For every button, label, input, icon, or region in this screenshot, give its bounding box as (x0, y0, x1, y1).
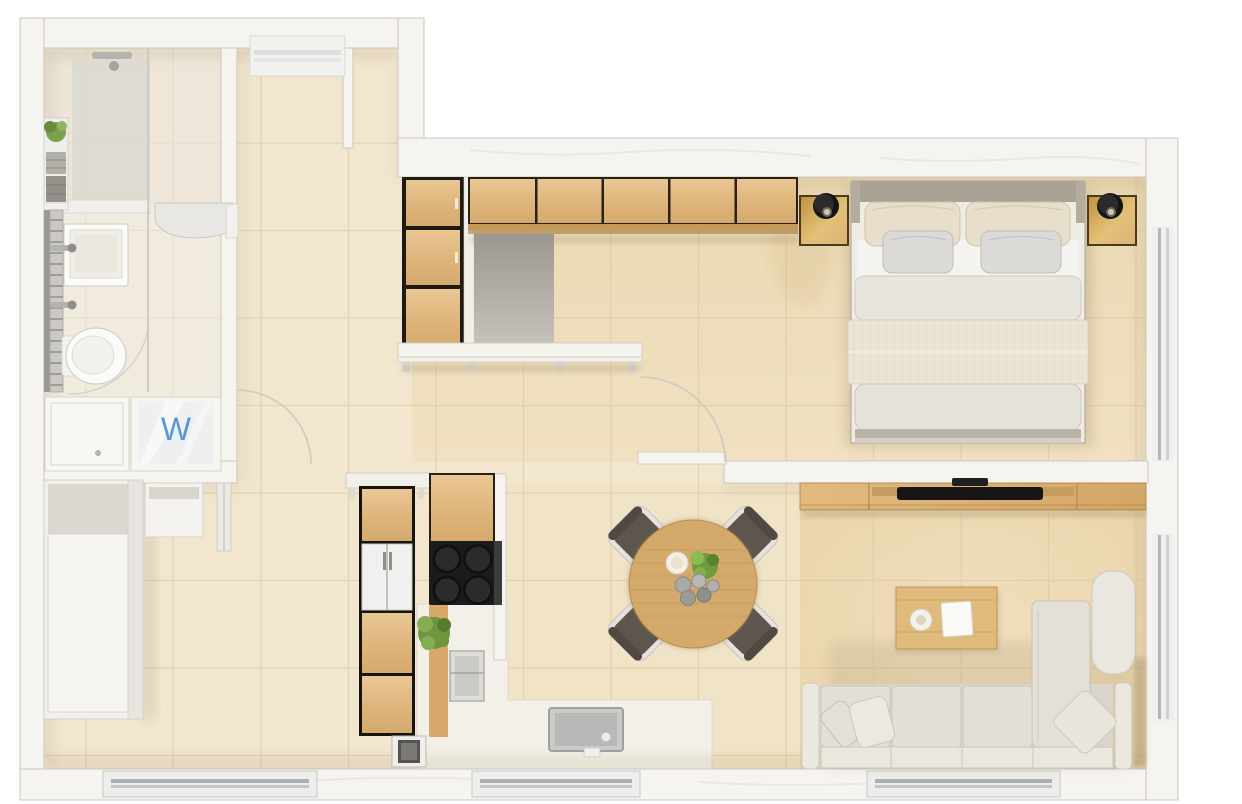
svg-text:W: W (161, 411, 192, 447)
